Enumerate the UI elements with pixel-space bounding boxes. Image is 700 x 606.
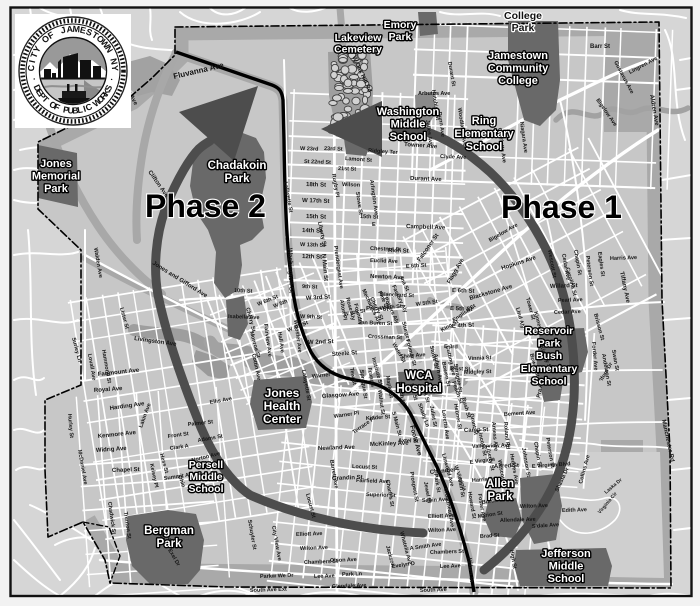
svg-text:Park: Park xyxy=(389,31,412,43)
svg-text:Vinnia St: Vinnia St xyxy=(468,355,492,362)
svg-text:Park Ln: Park Ln xyxy=(342,571,363,578)
svg-text:Alfred St: Alfred St xyxy=(494,463,519,470)
svg-text:Health: Health xyxy=(264,399,301,413)
svg-text:Jones: Jones xyxy=(40,158,72,170)
svg-text:St 22nd St: St 22nd St xyxy=(304,159,331,166)
svg-text:South Ave: South Ave xyxy=(420,587,447,594)
svg-text:Cedar Ave: Cedar Ave xyxy=(554,309,581,316)
svg-text:21st St: 21st St xyxy=(338,166,356,173)
svg-text:Cemetery: Cemetery xyxy=(334,44,382,56)
svg-text:Allendale Ave: Allendale Ave xyxy=(500,517,536,524)
svg-text:Clyde Ave: Clyde Ave xyxy=(440,154,466,161)
svg-text:Isabella Ave: Isabella Ave xyxy=(228,314,260,321)
svg-text:School: School xyxy=(188,483,223,495)
svg-text:Jones: Jones xyxy=(265,386,300,400)
svg-text:Park: Park xyxy=(44,183,69,195)
svg-text:E: E xyxy=(372,222,376,228)
svg-text:Wilton Ave: Wilton Ave xyxy=(300,545,328,552)
svg-text:Pearl Ave: Pearl Ave xyxy=(558,297,583,304)
svg-text:Ring: Ring xyxy=(472,115,496,127)
svg-text:Allen: Allen xyxy=(486,478,514,490)
svg-text:Washington: Washington xyxy=(377,106,440,118)
svg-text:Jamestown: Jamestown xyxy=(488,50,548,62)
svg-text:12th St: 12th St xyxy=(302,254,322,261)
svg-text:Crossman St: Crossman St xyxy=(368,334,402,341)
svg-text:Park: Park xyxy=(512,22,535,34)
svg-text:Midgley St: Midgley St xyxy=(464,369,492,376)
svg-text:Chapel St: Chapel St xyxy=(112,467,140,474)
svg-text:Bush: Bush xyxy=(536,350,562,362)
svg-text:Phase 1: Phase 1 xyxy=(501,189,622,225)
svg-text:Middle: Middle xyxy=(549,561,584,573)
svg-text:18th St: 18th St xyxy=(306,182,326,189)
svg-text:W 13th St: W 13th St xyxy=(300,242,325,249)
svg-text:Park: Park xyxy=(538,338,561,350)
svg-text:W 17th St: W 17th St xyxy=(302,198,330,205)
svg-text:Park: Park xyxy=(225,173,251,185)
svg-text:Chadakoin: Chadakoin xyxy=(208,160,267,172)
svg-text:Camp St: Camp St xyxy=(464,427,489,434)
svg-text:Wilton Ave: Wilton Ave xyxy=(520,503,548,510)
svg-text:14th St: 14th St xyxy=(302,228,322,235)
svg-text:Willard St: Willard St xyxy=(550,283,578,290)
svg-text:Lee Ave: Lee Ave xyxy=(314,573,335,580)
svg-text:Y: Y xyxy=(110,65,120,72)
svg-text:Jefferson: Jefferson xyxy=(541,548,591,560)
svg-text:Wilton Ave: Wilton Ave xyxy=(428,527,456,534)
svg-text:WCA: WCA xyxy=(405,370,432,382)
svg-text:Chestnut St: Chestnut St xyxy=(370,246,401,253)
svg-text:Euclid Ave: Euclid Ave xyxy=(370,258,398,265)
svg-text:Barr St: Barr St xyxy=(590,44,610,50)
svg-text:Community: Community xyxy=(488,63,549,75)
svg-text:Elementary: Elementary xyxy=(521,363,578,375)
svg-text:Durant Ave: Durant Ave xyxy=(410,176,442,183)
svg-text:Elementary: Elementary xyxy=(454,128,514,140)
svg-text:E 6th St: E 6th St xyxy=(452,288,475,295)
svg-text:Harris Ave: Harris Ave xyxy=(610,255,637,262)
svg-text:Phase 2: Phase 2 xyxy=(145,188,266,224)
svg-text:23rd St: 23rd St xyxy=(324,146,343,153)
svg-text:Parkw We Dr: Parkw We Dr xyxy=(260,573,295,580)
svg-text:Edith Ave: Edith Ave xyxy=(562,507,587,514)
svg-text:Chambers St: Chambers St xyxy=(304,559,338,566)
svg-text:Lakeview: Lakeview xyxy=(335,32,383,44)
svg-text:Center: Center xyxy=(263,412,301,426)
svg-text:Park: Park xyxy=(157,538,183,550)
svg-text:School: School xyxy=(390,131,427,143)
svg-text:Memorial: Memorial xyxy=(32,171,80,183)
svg-text:Sabin Ave: Sabin Ave xyxy=(422,497,448,504)
svg-text:Elliott Ave: Elliott Ave xyxy=(428,513,455,520)
svg-text:Glendale Ave: Glendale Ave xyxy=(332,583,367,590)
svg-text:College: College xyxy=(504,10,542,22)
svg-text:Grandin St: Grandin St xyxy=(332,475,363,482)
svg-text:Bergman: Bergman xyxy=(144,525,194,537)
svg-text:Reservoir: Reservoir xyxy=(525,325,573,337)
svg-text:School: School xyxy=(466,141,503,153)
svg-text:Middle: Middle xyxy=(391,119,426,131)
svg-text:Chambers St: Chambers St xyxy=(430,549,464,556)
svg-text:15th St: 15th St xyxy=(306,214,326,221)
svg-text:Persell: Persell xyxy=(189,459,224,471)
svg-text:9th St: 9th St xyxy=(302,284,318,291)
svg-text:Middle: Middle xyxy=(189,471,222,483)
svg-text:W 9th St: W 9th St xyxy=(300,314,322,321)
svg-text:Wilson: Wilson xyxy=(342,182,361,189)
svg-text:College: College xyxy=(498,75,538,87)
svg-text:Hospital: Hospital xyxy=(396,383,441,395)
svg-text:Emory: Emory xyxy=(384,19,417,31)
svg-text:W 23rd: W 23rd xyxy=(300,146,319,153)
svg-text:Locust St: Locust St xyxy=(352,464,377,471)
svg-text:15th St: 15th St xyxy=(360,214,379,221)
svg-text:W 2nd St: W 2nd St xyxy=(308,339,334,346)
svg-text:Lee Ave: Lee Ave xyxy=(440,563,461,570)
svg-text:Park: Park xyxy=(488,491,514,503)
svg-text:Elliott Ave: Elliott Ave xyxy=(296,531,323,538)
svg-text:School: School xyxy=(531,375,566,387)
svg-text:10th St: 10th St xyxy=(234,288,253,295)
svg-text:School: School xyxy=(548,573,585,585)
